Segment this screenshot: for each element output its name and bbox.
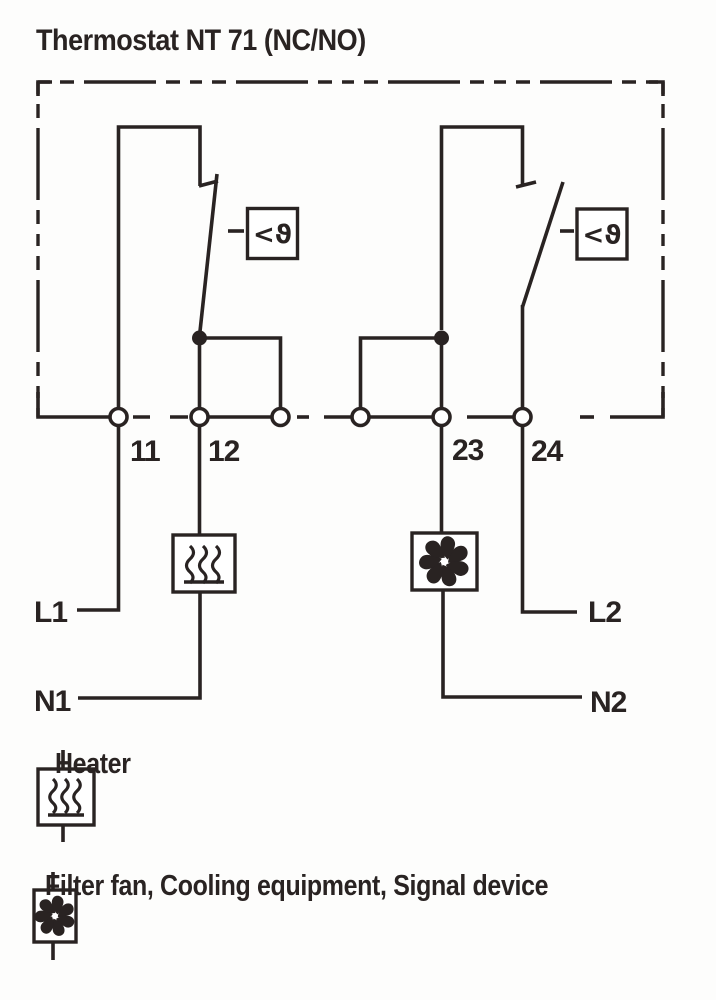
n2-label: N2	[590, 686, 627, 719]
thermostat-sensor-symbol-right: <ϑ	[583, 221, 622, 251]
no-switch-blade	[523, 182, 564, 307]
no-fixed-contact-tick	[516, 182, 536, 187]
legend-heater-label: Heater	[55, 748, 131, 781]
no-contact-circuit: <ϑ	[361, 127, 628, 417]
l1-label: L1	[34, 596, 67, 629]
terminal-23-label: 23	[452, 434, 484, 467]
legend-item-fan: Filter fan, Cooling equipment, Signal de…	[31, 870, 630, 903]
nc-contact-circuit: <ϑ	[119, 127, 298, 417]
no-supply-rail	[442, 127, 523, 330]
enclosure-boundary	[38, 82, 663, 417]
terminal-23	[433, 409, 450, 426]
terminal-24	[514, 409, 531, 426]
legend-item-heater: Heater	[35, 748, 143, 781]
n1-label: N1	[34, 685, 71, 718]
heater-device-icon	[173, 535, 235, 592]
legend-fan-label: Filter fan, Cooling equipment, Signal de…	[45, 870, 548, 903]
terminal-24-label: 24	[531, 435, 564, 468]
l1-wire	[77, 426, 119, 610]
l2-label: L2	[588, 596, 621, 629]
terminal-12	[191, 409, 208, 426]
nc-supply-rail	[119, 127, 201, 408]
thermostat-sensor-symbol-left: <ϑ	[253, 220, 292, 250]
bridge-loop-left	[200, 338, 281, 408]
nc-switch-blade	[200, 174, 218, 336]
n2-wire	[443, 590, 582, 697]
terminal-11	[110, 409, 127, 426]
bridge-loop-right	[361, 338, 442, 408]
n1-wire	[78, 592, 200, 698]
page: Thermostat NT 71 (NC/NO)	[0, 0, 716, 1000]
terminal-12-label: 12	[208, 435, 240, 468]
terminal-bridge-left	[272, 409, 289, 426]
wiring-diagram: <ϑ <ϑ 11 12 23 2	[0, 0, 716, 740]
fan-device-icon	[412, 533, 477, 590]
terminal-11-label: 11	[130, 435, 160, 468]
terminal-bridge-right	[352, 409, 369, 426]
